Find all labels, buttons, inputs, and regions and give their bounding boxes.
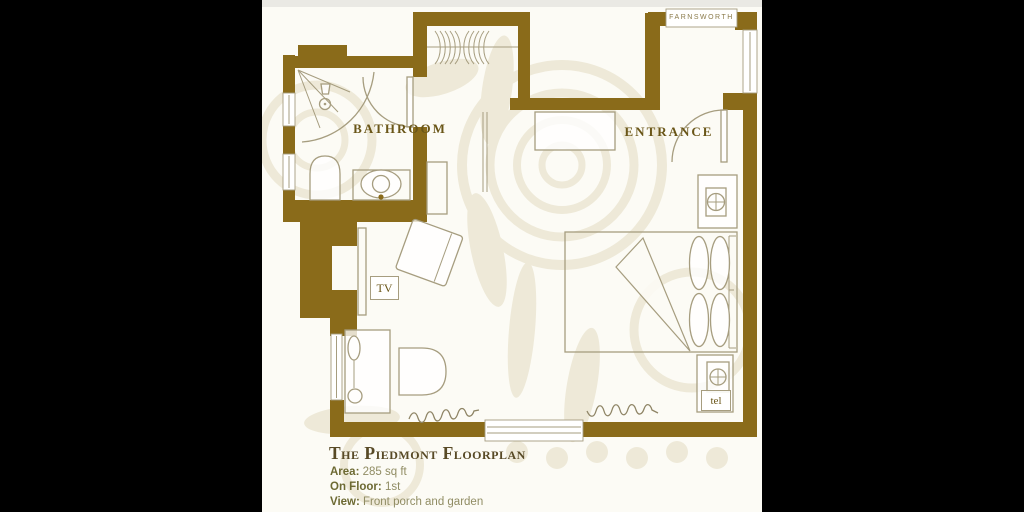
telephone-label-box: tel: [701, 390, 731, 411]
detail-area: Area: 285 sq ft: [330, 466, 407, 478]
pillow: [711, 294, 730, 347]
shower-head-icon: [321, 84, 330, 94]
sink-basin: [361, 170, 401, 198]
fireplace-notch: [332, 246, 357, 290]
desk: [345, 330, 390, 413]
entrance-label: ENTRANCE: [620, 124, 718, 140]
curtain-left: [409, 409, 479, 423]
nightstand-upper: [698, 175, 737, 228]
detail-label: Area:: [330, 466, 359, 478]
floorplan-drawing: [262, 0, 762, 512]
duvet-fold: [616, 238, 690, 351]
detail-value: 1st: [385, 481, 400, 493]
entrance-door-leaf: [721, 110, 727, 162]
bedroom-front-window: [485, 420, 583, 441]
curtain-right: [587, 405, 658, 417]
letterboxed-stage: BATHROOM ENTRANCE FARNSWORTH TV tel The …: [0, 0, 1024, 512]
bathroom-door-leaf: [407, 77, 413, 127]
bathroom-fixtures: [298, 70, 487, 214]
toilet: [310, 156, 340, 200]
armchair: [395, 219, 463, 287]
detail-floor: On Floor: 1st: [330, 481, 400, 493]
tv-console: [358, 228, 366, 315]
detail-value: 285 sq ft: [363, 466, 407, 478]
faucet-icon: [378, 194, 383, 199]
farnsworth-window-label: FARNSWORTH: [666, 10, 737, 26]
pillow: [711, 237, 730, 290]
detail-view: View: Front porch and garden: [330, 496, 483, 508]
pillow: [690, 294, 709, 347]
floorplan-title: The Piedmont Floorplan: [329, 443, 526, 464]
pillow: [690, 237, 709, 290]
bathroom-label: BATHROOM: [340, 121, 460, 137]
detail-label: View:: [330, 496, 360, 508]
floorplan-canvas: BATHROOM ENTRANCE FARNSWORTH TV tel The …: [262, 0, 762, 512]
desk-chair: [399, 348, 446, 395]
entry-bench: [535, 112, 615, 150]
tv-label-box: TV: [370, 276, 399, 300]
hall-shelf: [427, 162, 447, 214]
detail-label: On Floor:: [330, 481, 382, 493]
detail-value: Front porch and garden: [363, 496, 483, 508]
